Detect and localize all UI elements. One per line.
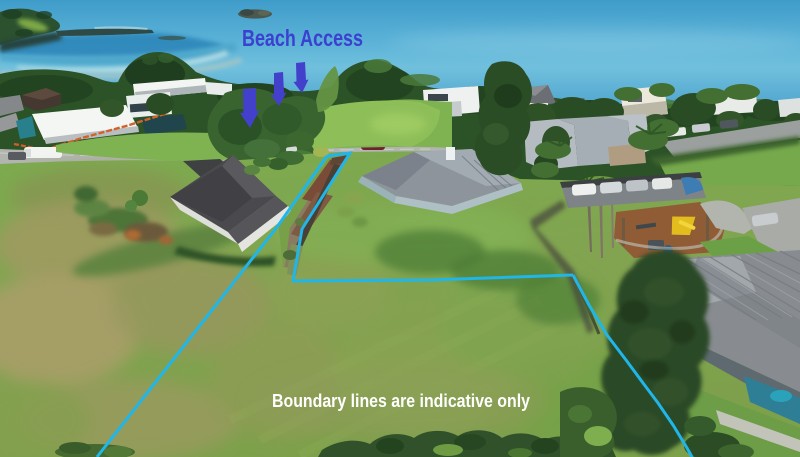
svg-text:Beach Access: Beach Access: [242, 25, 363, 51]
svg-text:Boundary lines are indicative: Boundary lines are indicative only: [272, 391, 530, 411]
